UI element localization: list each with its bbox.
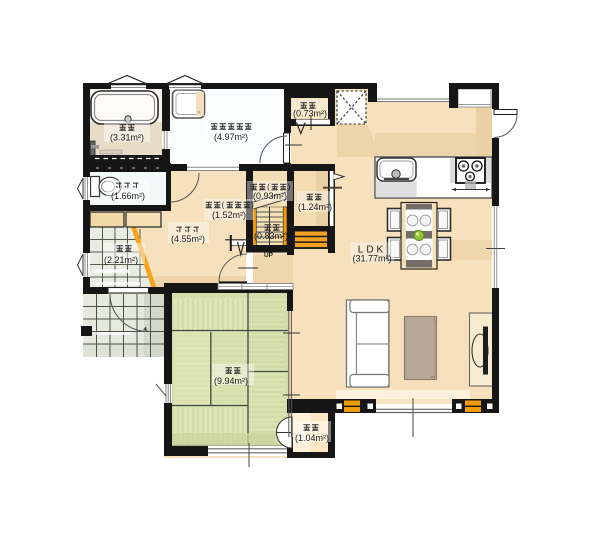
svg-text:(: ( — [222, 201, 225, 210]
svg-text:): ) — [288, 183, 291, 192]
svg-text:): ) — [251, 201, 254, 210]
svg-text:UP: UP — [264, 252, 274, 259]
svg-text:(9.94m²): (9.94m²) — [214, 376, 248, 386]
svg-text:(2.21m²): (2.21m²) — [104, 255, 138, 265]
svg-text:(1.66m²): (1.66m²) — [111, 191, 145, 201]
svg-text:(1.04m²): (1.04m²) — [295, 433, 329, 443]
svg-text:(4.55m²): (4.55m²) — [171, 234, 205, 244]
svg-text:(0.93m²): (0.93m²) — [253, 191, 287, 201]
svg-text:(3.31m²): (3.31m²) — [110, 133, 144, 143]
svg-text:(1.52m²): (1.52m²) — [212, 210, 246, 220]
svg-text:(4.97m²): (4.97m²) — [214, 132, 248, 142]
svg-text:(0.73m²): (0.73m²) — [293, 109, 327, 119]
svg-text:(31.77m²): (31.77m²) — [352, 254, 391, 264]
svg-text:(0.83m²): (0.83m²) — [254, 231, 288, 241]
svg-text:(1.24m²): (1.24m²) — [298, 202, 332, 212]
